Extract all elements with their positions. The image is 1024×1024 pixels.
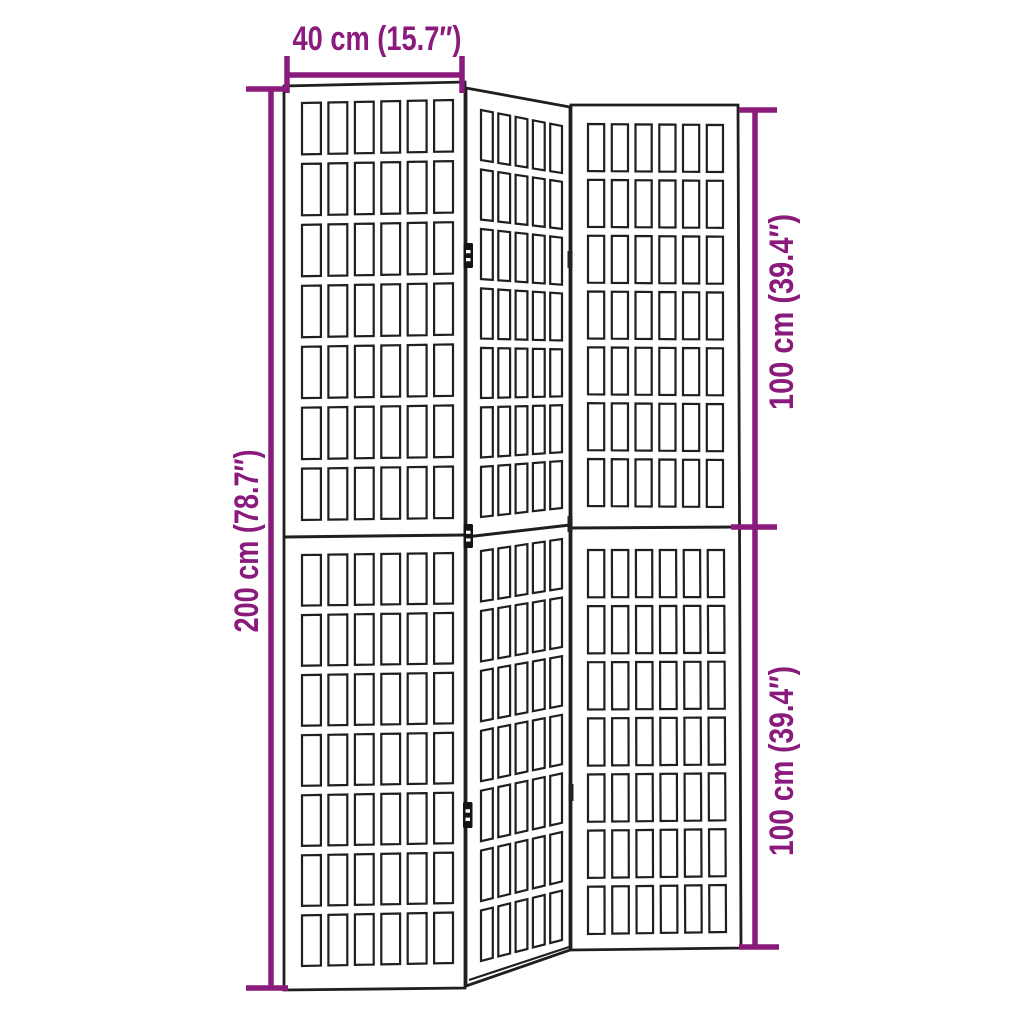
dimension-height-upper-label: 100 cm (39.4″) bbox=[763, 214, 801, 410]
dimension-height-total-label: 200 cm (78.7″) bbox=[228, 450, 266, 633]
hinge-slot bbox=[466, 538, 471, 541]
hinge-edge-mark bbox=[568, 251, 573, 268]
panel-middle bbox=[466, 88, 570, 986]
diagram-canvas: 40 cm (15.7″) 200 cm (78.7″) 100 cm (39.… bbox=[0, 0, 1024, 1024]
hinge bbox=[463, 802, 473, 828]
hinge-body bbox=[464, 524, 474, 548]
hinge-slot bbox=[466, 258, 471, 261]
hinge-edge-mark bbox=[568, 516, 573, 532]
panel-right-mid-rail bbox=[571, 527, 739, 528]
hinge-body bbox=[464, 243, 474, 268]
hinge-slot bbox=[466, 818, 471, 821]
hinge bbox=[464, 243, 474, 268]
hinge bbox=[464, 524, 474, 548]
figure-layer bbox=[284, 82, 741, 990]
dimension-height-lower-label: 100 cm (39.4″) bbox=[763, 666, 801, 856]
panel-right bbox=[571, 105, 741, 950]
hinge-slot bbox=[466, 809, 471, 812]
dimension-width-label: 40 cm (15.7″) bbox=[293, 20, 462, 58]
hinge-edge-mark bbox=[569, 784, 574, 801]
hinge-slot bbox=[466, 531, 471, 534]
hinge-body bbox=[463, 802, 473, 828]
hinge-slot bbox=[466, 250, 471, 253]
panel-left bbox=[284, 82, 465, 990]
product-dimension-diagram: 40 cm (15.7″) 200 cm (78.7″) 100 cm (39.… bbox=[0, 0, 1024, 1024]
dimension-height-total: 200 cm (78.7″) bbox=[228, 89, 288, 988]
panel-left-mid-rail bbox=[284, 535, 465, 537]
